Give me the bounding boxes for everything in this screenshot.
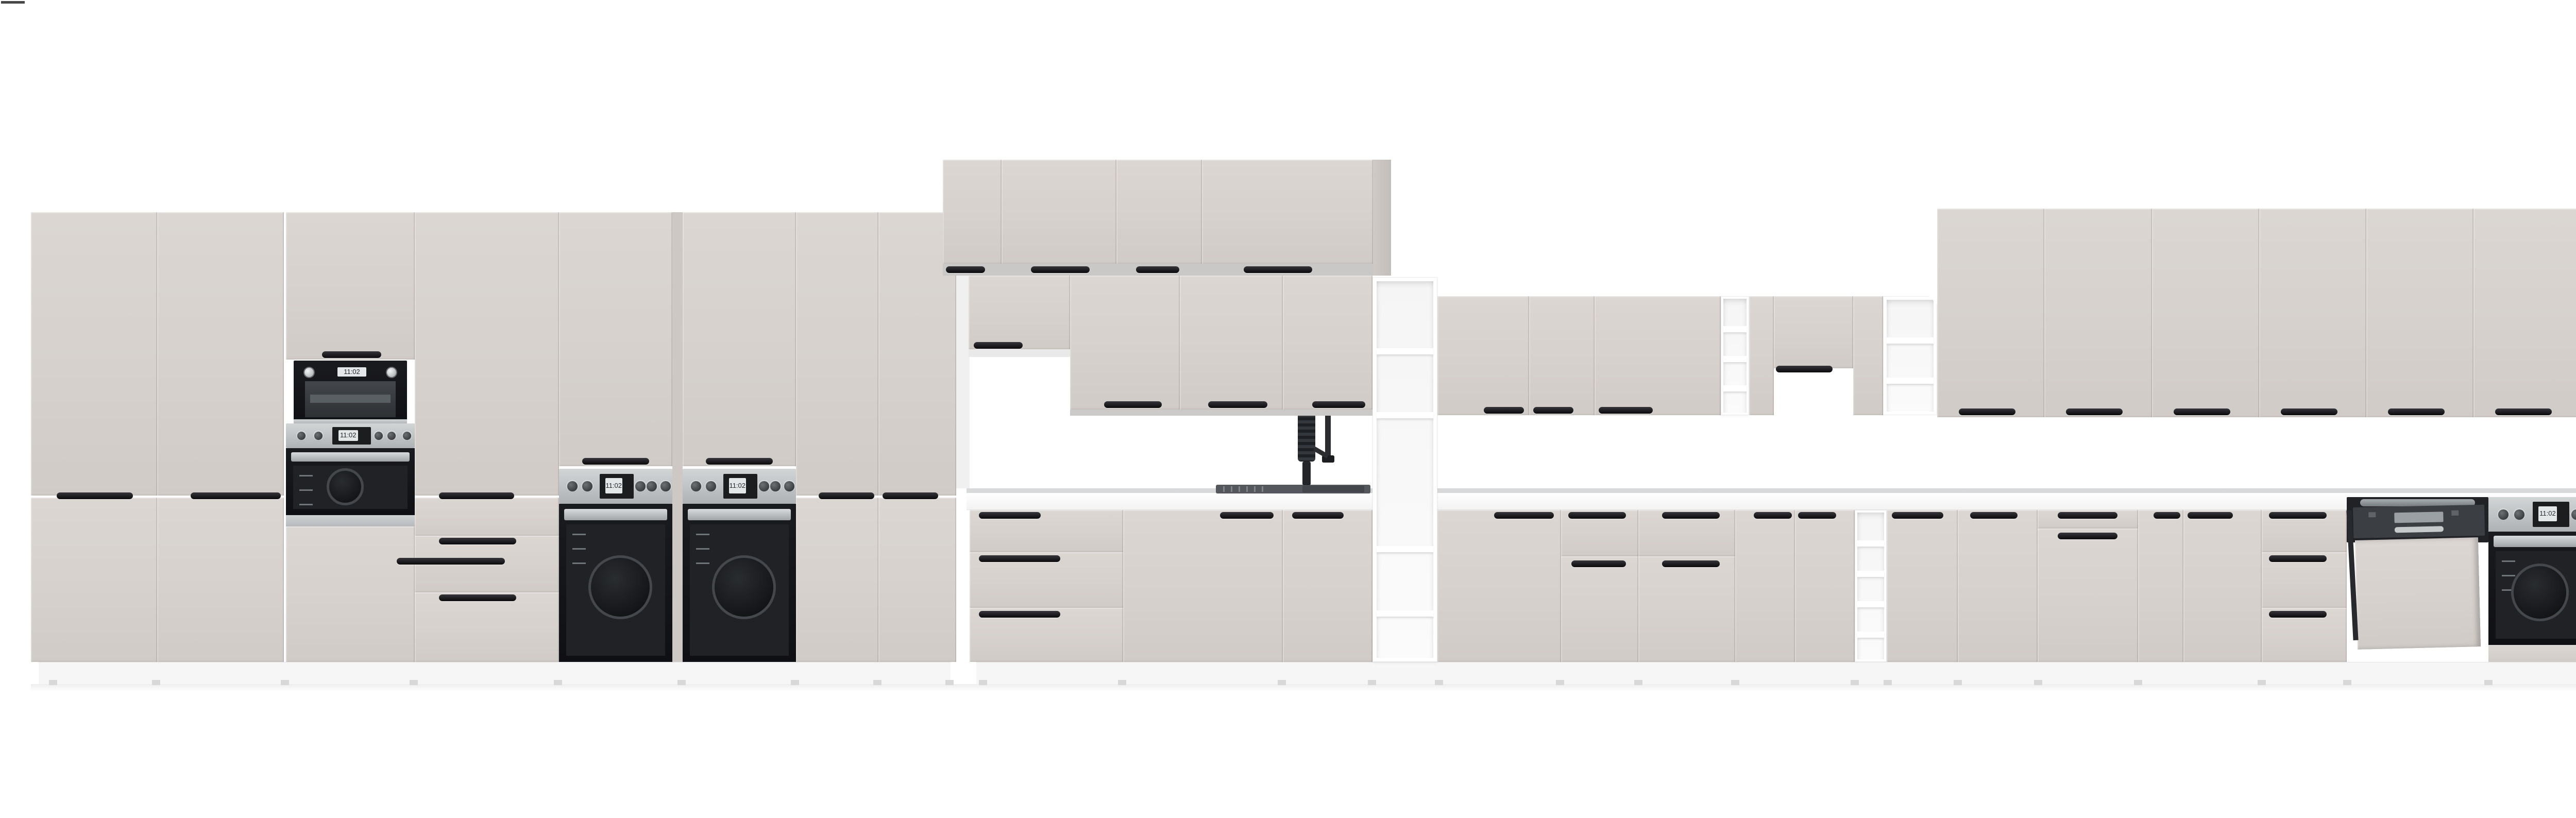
handle-bar: [1571, 560, 1626, 567]
open-corner-shelf[interactable]: [1883, 296, 1937, 415]
handle-bar: [706, 458, 773, 465]
handle-bar: [946, 266, 985, 273]
tall-cabinet-door[interactable]: [415, 212, 559, 496]
wall-cabinet-door[interactable]: [1283, 276, 1372, 410]
handle-bar: [2058, 512, 2117, 519]
microwave[interactable]: 11:02: [294, 361, 407, 423]
built-in-oven[interactable]: 11:02: [2488, 497, 2576, 662]
sink-groove: [1239, 486, 1240, 492]
handle-bar: [1533, 407, 1573, 414]
tall-wall-cabinet-door[interactable]: [2152, 209, 2259, 417]
cabinet-foot: [1368, 680, 1376, 685]
tall-wall-cabinet-door[interactable]: [2473, 209, 2576, 417]
oven-door: [683, 504, 796, 662]
sink-cabinet-door[interactable]: [1283, 510, 1372, 662]
oven-pan: [712, 555, 776, 619]
oven-door-handle: [291, 452, 410, 462]
oven-rack: [696, 563, 709, 564]
oven-trim: [286, 515, 415, 526]
handle-bar: [883, 492, 938, 499]
tall-cabinet-door[interactable]: [157, 212, 284, 496]
oven-display-module: 11:02: [600, 474, 634, 499]
built-in-oven[interactable]: 11:02: [286, 423, 415, 526]
oven-door: [559, 504, 672, 662]
base-cabinet-door[interactable]: [1437, 510, 1561, 662]
cabinet-foot: [1731, 680, 1739, 685]
handle-bar: [2058, 533, 2117, 539]
handle-bar: [2154, 512, 2180, 519]
dishwasher-latch: [2451, 510, 2459, 516]
shelf: [1723, 356, 1747, 363]
dishwasher-door: [2355, 537, 2481, 650]
handle-bar: [582, 458, 649, 465]
oven-tower-drawer[interactable]: [286, 526, 415, 662]
sink[interactable]: [1216, 485, 1370, 493]
oven-window: [2496, 551, 2576, 639]
oven-window: [690, 524, 789, 656]
drawer-front[interactable]: [415, 592, 559, 662]
oven-display-module: 11:02: [723, 474, 757, 499]
handle-bar: [1776, 366, 1833, 372]
cabinet-foot: [791, 680, 799, 685]
knob-icon: [2571, 509, 2576, 520]
cabinet-foot: [1556, 680, 1564, 685]
shelf-interior: [1887, 300, 1934, 412]
oven-rack: [299, 475, 313, 476]
filler-strip: [672, 212, 683, 662]
shelf: [1723, 385, 1747, 393]
cabinet-foot: [1884, 680, 1892, 685]
tall-cabinet-lower-door[interactable]: [878, 498, 956, 662]
counter-face: [967, 493, 1372, 510]
oven-control-panel: 11:02: [559, 469, 672, 504]
knob-icon: [567, 481, 578, 491]
microwave-window: [305, 381, 396, 417]
built-in-oven[interactable]: 11:02: [683, 469, 796, 662]
sink-groove: [1262, 486, 1263, 492]
hood-cabinet-side[interactable]: [1853, 296, 1883, 415]
microwave-trim: [294, 419, 407, 423]
oven-control-panel: 11:02: [683, 469, 796, 504]
oven-display-module: 11:02: [2533, 502, 2569, 526]
base-cabinet-door[interactable]: [1887, 510, 1958, 662]
handle-bar: [2388, 408, 2445, 415]
shelf: [1377, 546, 1433, 553]
cabinet-side-face: [1373, 160, 1391, 276]
handle-bar: [1798, 512, 1836, 519]
base-cabinet-door[interactable]: [2138, 510, 2183, 662]
handle-bar: [1220, 512, 1274, 519]
open-shelf-column[interactable]: [1721, 296, 1749, 415]
cabinet-foot: [1634, 680, 1642, 685]
handle-bar: [1568, 512, 1626, 519]
handle-bar: [1494, 512, 1554, 519]
oven-rack: [2502, 560, 2515, 562]
knob-icon: [691, 481, 701, 491]
cabinet-foot: [2034, 680, 2042, 685]
handle-bar: [439, 538, 516, 544]
handle-bar: [2269, 512, 2327, 519]
shelf: [1857, 601, 1884, 608]
handle-bar: [1136, 266, 1179, 273]
knob-icon: [387, 368, 396, 377]
oven-pan: [588, 555, 652, 619]
over-counter-cabinet-door[interactable]: [969, 276, 1070, 349]
dishwasher-latch: [2368, 512, 2376, 517]
cabinet-foot: [1118, 680, 1126, 685]
wall-cabinet-door[interactable]: [1529, 296, 1595, 415]
drawer-front[interactable]: [1638, 556, 1735, 662]
wall-cabinet-door[interactable]: [1437, 296, 1529, 415]
sink-groove: [1254, 486, 1256, 492]
handle-bar: [2066, 408, 2123, 415]
oven-rack: [572, 548, 586, 550]
shelf: [1857, 571, 1884, 578]
faucet-pipe: [1302, 462, 1311, 485]
knob-icon: [2498, 509, 2509, 520]
tall-cabinet-lower-door[interactable]: [31, 498, 157, 662]
handle-bar: [1292, 512, 1344, 519]
sink-groove: [1223, 486, 1225, 492]
hood-cabinet-side[interactable]: [1749, 296, 1774, 415]
shelf: [1857, 632, 1884, 639]
knob-icon: [387, 432, 396, 440]
handle-bar: [2269, 611, 2327, 618]
knob-icon: [297, 432, 306, 440]
oven-control-panel: 11:02: [286, 423, 415, 448]
floor-shadow: [31, 684, 2576, 691]
appliance-clock: 11:02: [337, 367, 366, 377]
handle-bar: [439, 492, 514, 499]
handle-bar: [1599, 407, 1653, 414]
knob-icon: [635, 481, 646, 491]
handle-bar: [439, 594, 516, 601]
open-shelf-tower[interactable]: [1372, 277, 1437, 662]
oven-rack: [572, 563, 586, 564]
oven-rack: [696, 548, 709, 550]
handle-bar: [819, 492, 874, 499]
base-cabinet-door[interactable]: [1958, 510, 2038, 662]
appliance-clock: 11:02: [729, 478, 746, 493]
appliance-clock: 11:02: [2538, 506, 2557, 521]
knob-icon: [314, 432, 323, 440]
oven-rack: [2502, 575, 2515, 576]
base-cabinet-door[interactable]: [1123, 510, 1283, 662]
shelf: [1723, 326, 1747, 333]
cabinet-foot: [945, 680, 954, 685]
handle-bar: [57, 492, 133, 499]
cabinet-foot: [1851, 680, 1859, 685]
top-cabinet-door[interactable]: [1116, 160, 1202, 264]
oven-rack: [696, 534, 709, 535]
handle-bar: [1208, 401, 1267, 408]
cabinet-foot: [1954, 680, 1962, 685]
cabinet-foot: [1435, 680, 1443, 685]
cabinet-foot: [677, 680, 686, 685]
oven-pan: [327, 468, 364, 505]
cabinet-foot: [873, 680, 882, 685]
oven-window: [293, 466, 408, 509]
handle-bar: [322, 351, 381, 358]
cabinet-foot: [281, 680, 289, 685]
shelf: [1377, 610, 1433, 618]
knob-icon: [403, 432, 411, 440]
handle-bar: [974, 342, 1023, 349]
base-cabinet-door[interactable]: [2183, 510, 2262, 662]
oven-rack: [299, 504, 313, 505]
handle-bar: [1312, 401, 1365, 408]
cabinet-foot: [2484, 680, 2493, 685]
oven-pan: [2511, 564, 2569, 621]
handle-bar: [1031, 266, 1090, 273]
knob-icon: [375, 432, 383, 440]
cabinet-foot: [410, 680, 418, 685]
oven-rack: [572, 534, 586, 535]
cabinet-foot: [1278, 680, 1286, 685]
faucet-spout: [1325, 410, 1331, 457]
handle-bar: [2188, 512, 2233, 519]
knob-icon: [582, 481, 592, 491]
top-cabinet-door[interactable]: [1202, 160, 1373, 264]
sink-groove: [1231, 486, 1232, 492]
oven-door-handle: [688, 509, 791, 520]
handle-bar: [979, 611, 1060, 618]
cabinet-foot: [49, 680, 57, 685]
dishwasher-control-panel: [2353, 505, 2485, 538]
wall-cabinet-door[interactable]: [1070, 276, 1180, 410]
handle-bar: [397, 558, 505, 565]
appliance-clock: 11:02: [338, 430, 358, 441]
shelf: [1377, 348, 1433, 355]
oven-display-module: 11:02: [332, 427, 371, 445]
appliance-clock: 11:02: [605, 478, 622, 493]
oven-tower-top-door[interactable]: [683, 212, 796, 466]
handle-bar: [979, 555, 1060, 562]
handle-bar: [1244, 266, 1312, 273]
drawer-front[interactable]: [1561, 556, 1638, 662]
kitchen-elevation-canvas: 11:0211:0211:0211:0211:02: [0, 0, 2576, 818]
open-shelf-base[interactable]: [1855, 510, 1887, 662]
tall-wall-cabinet-door[interactable]: [2259, 209, 2366, 417]
microwave-window-tray: [310, 395, 391, 403]
dishwasher-display: [2394, 512, 2443, 523]
oven-window: [566, 524, 665, 656]
base-cabinet-door[interactable]: [1735, 510, 1795, 662]
oven-control-panel: 11:02: [2488, 497, 2576, 532]
handle-bar: [1959, 408, 2015, 415]
shelf: [1887, 337, 1934, 345]
handle-bar: [1662, 560, 1720, 567]
tall-wall-cabinet-door[interactable]: [2366, 209, 2473, 417]
oven-door: [2488, 532, 2576, 645]
cabinet-underside: [969, 349, 1070, 357]
base-cabinet-door[interactable]: [1795, 510, 1855, 662]
knob-icon: [770, 481, 781, 491]
handle-bar: [2495, 408, 2552, 415]
dishwasher[interactable]: [2347, 497, 2488, 662]
dishwasher-handle-recess: [2394, 526, 2443, 533]
handle-bar: [1754, 512, 1792, 519]
tall-cabinet-door[interactable]: [796, 212, 878, 496]
cabinet-foot: [554, 680, 562, 685]
built-in-oven[interactable]: 11:02: [559, 469, 672, 662]
handle-bar: [1662, 512, 1720, 519]
shelf-interior: [1377, 281, 1433, 658]
cabinet-bottom-edge: [1070, 410, 1372, 416]
tall-cabinet-lower-door[interactable]: [157, 498, 284, 662]
cabinet-foot: [2258, 680, 2266, 685]
tall-wall-cabinet-door[interactable]: [1937, 209, 2044, 417]
knob-icon: [304, 368, 314, 377]
oven-door-handle: [2494, 536, 2576, 547]
wall-cabinet-door[interactable]: [1595, 296, 1721, 415]
shelf: [1887, 378, 1934, 385]
wall-cabinet-door[interactable]: [1180, 276, 1283, 410]
shelf: [1857, 540, 1884, 548]
sink-groove: [1246, 486, 1248, 492]
knob-icon: [759, 481, 769, 491]
plinth: [39, 662, 951, 684]
handle-bar: [2281, 408, 2337, 415]
tall-cabinet-door[interactable]: [31, 212, 157, 496]
hood-cabinet-door[interactable]: [1774, 296, 1853, 368]
oven-door: [286, 448, 415, 515]
oven-base-front: [2488, 645, 2576, 662]
tall-cabinet-lower-door[interactable]: [796, 498, 878, 662]
handle-bar: [1970, 512, 2018, 519]
drawer-front[interactable]: [415, 498, 559, 536]
oven-tower-top-door[interactable]: [286, 212, 415, 360]
cabinet-foot: [2134, 680, 2142, 685]
knob-icon: [784, 481, 794, 491]
handle-bar: [2174, 408, 2230, 415]
counter-edge: [1437, 488, 2576, 493]
handle-bar: [979, 512, 1041, 519]
drawer-front[interactable]: [2038, 529, 2138, 662]
handle-bar: [1892, 512, 1943, 519]
handle-bar: [191, 492, 281, 499]
corner-artifact: [1, 1, 25, 4]
handle-bar: [1484, 407, 1524, 414]
cabinet-foot: [2343, 680, 2351, 685]
cabinet-foot: [152, 680, 160, 685]
handle-bar: [2269, 555, 2327, 562]
knob-icon: [706, 481, 716, 491]
knob-icon: [647, 481, 657, 491]
top-cabinet-door[interactable]: [1002, 160, 1116, 264]
tall-wall-cabinet-door[interactable]: [2044, 209, 2152, 417]
oven-tower-top-door[interactable]: [559, 212, 672, 466]
oven-rack: [299, 489, 313, 491]
oven-door-handle: [564, 509, 667, 520]
top-cabinet-door[interactable]: [943, 160, 1002, 264]
plinth: [976, 662, 2576, 684]
knob-icon: [660, 481, 671, 491]
handle-bar: [1104, 401, 1162, 408]
knob-icon: [2514, 509, 2524, 520]
shelf: [1377, 412, 1433, 419]
cabinet-foot: [979, 680, 987, 685]
